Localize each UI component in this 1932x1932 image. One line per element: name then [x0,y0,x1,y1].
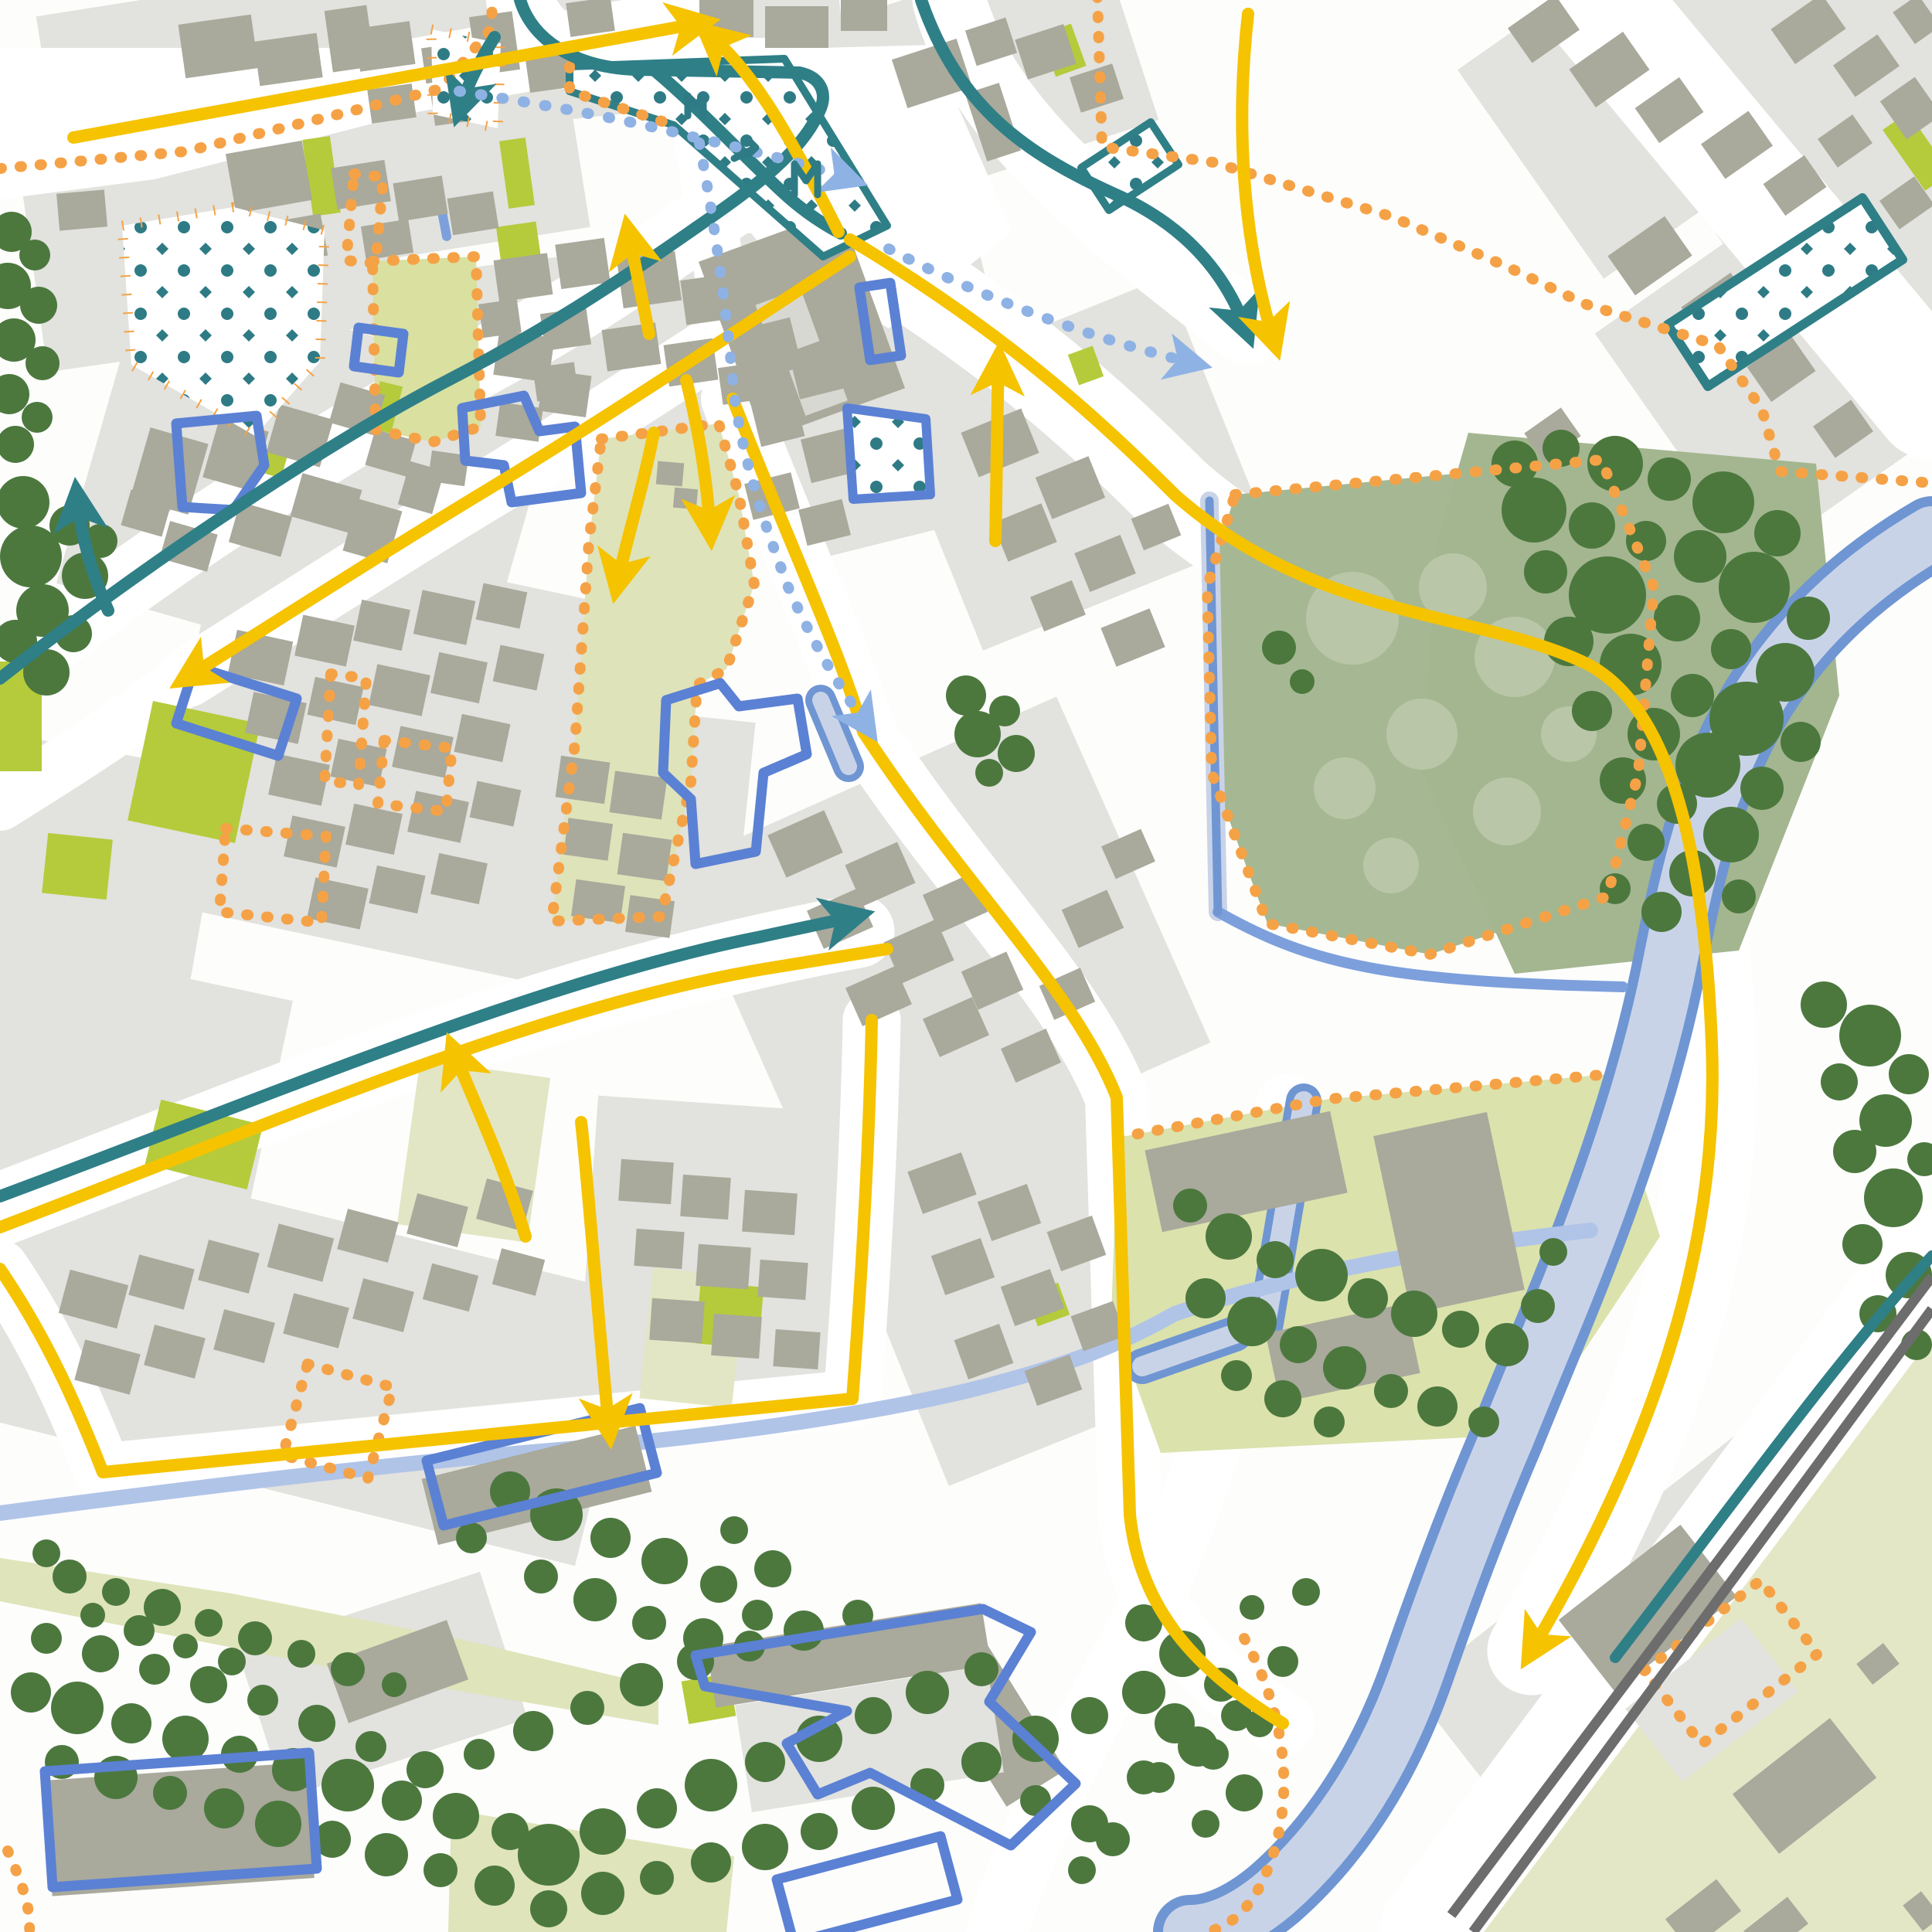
map-canvas[interactable] [0,0,1932,1932]
city-plan-map [0,0,1932,1932]
